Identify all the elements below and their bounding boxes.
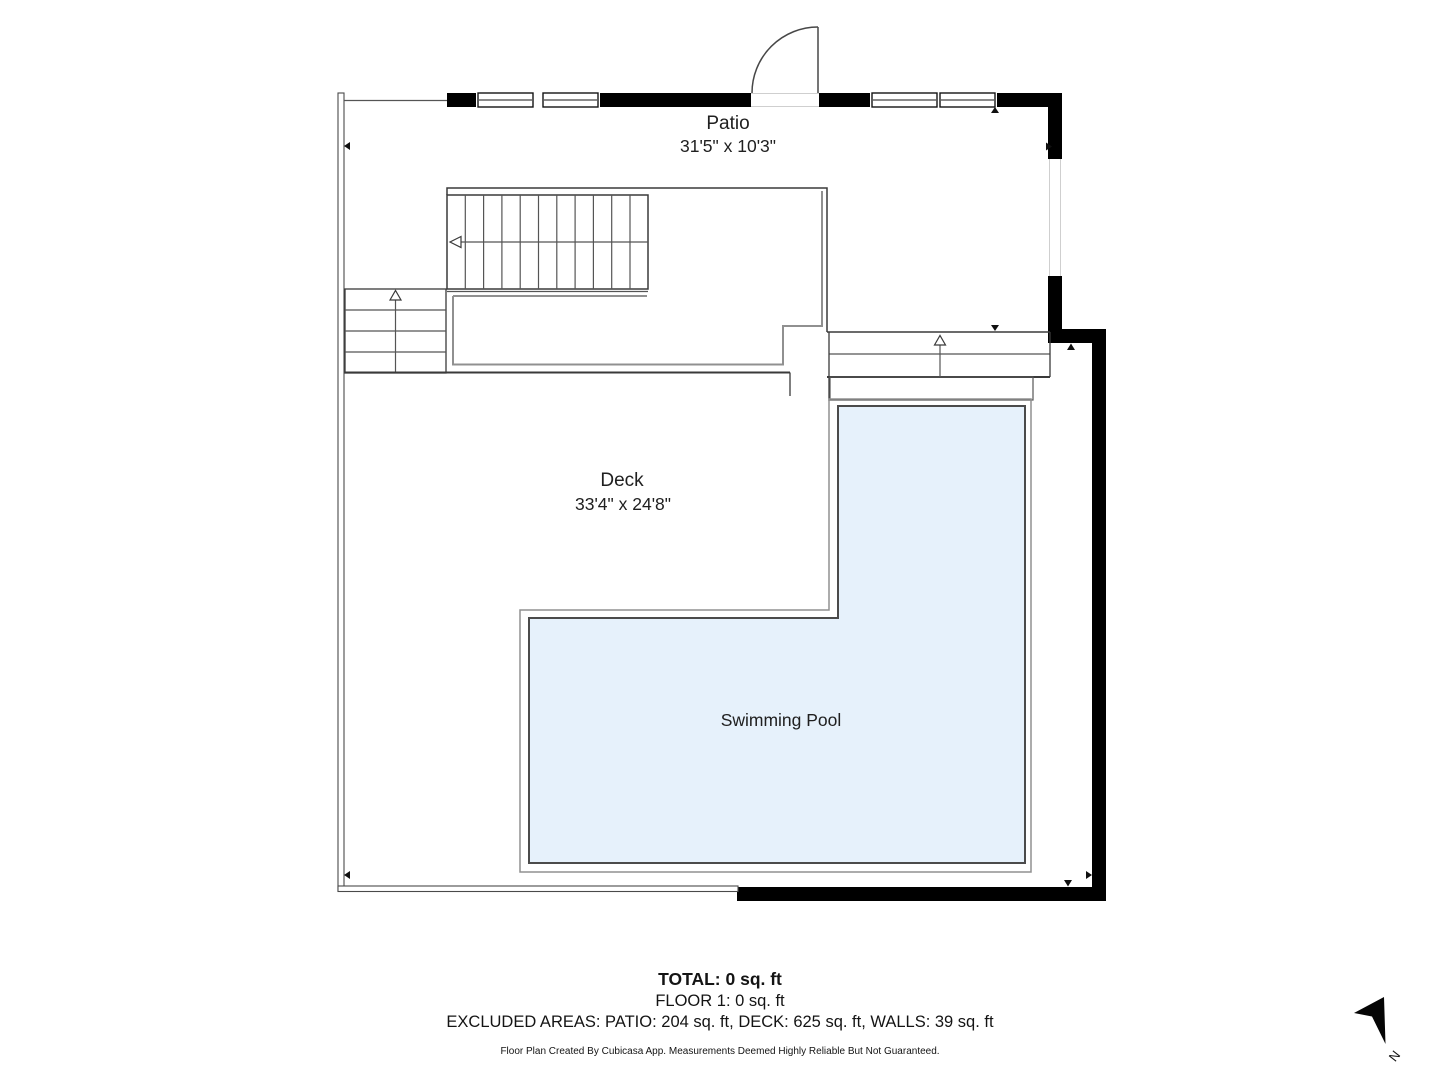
summary-block: TOTAL: 0 sq. ft FLOOR 1: 0 sq. ft EXCLUD… bbox=[446, 969, 994, 1057]
staircase-right bbox=[827, 332, 1050, 401]
summary-floor: FLOOR 1: 0 sq. ft bbox=[655, 992, 785, 1010]
window-1 bbox=[478, 93, 533, 107]
right-wall-opening bbox=[1050, 159, 1061, 276]
wall-right-mid bbox=[1048, 276, 1062, 329]
patio-door bbox=[751, 27, 819, 109]
swimming-pool-area bbox=[520, 399, 1031, 872]
marker-right-lower bbox=[1086, 871, 1092, 879]
marker-jog bbox=[1067, 344, 1075, 351]
window-4 bbox=[940, 93, 995, 107]
pool-label: Swimming Pool bbox=[721, 710, 842, 730]
staircase-main-treads bbox=[447, 195, 648, 292]
stair-direction-arrow-up-left bbox=[390, 291, 401, 301]
window-3 bbox=[872, 93, 937, 107]
summary-excluded: EXCLUDED AREAS: PATIO: 204 sq. ft, DECK:… bbox=[446, 1013, 994, 1031]
wall-bottom bbox=[737, 887, 1106, 901]
patio-label: Patio bbox=[706, 113, 749, 134]
walkway-outline bbox=[453, 191, 822, 365]
north-compass: N bbox=[1354, 997, 1403, 1064]
summary-disclaimer: Floor Plan Created By Cubicasa App. Meas… bbox=[500, 1046, 939, 1057]
pool-landing bbox=[830, 377, 1033, 400]
door-swing-arc bbox=[752, 27, 818, 93]
door-opening bbox=[751, 92, 819, 109]
deck-edges bbox=[345, 191, 822, 396]
staircase-main bbox=[447, 195, 648, 292]
marker-bottom-wall bbox=[1064, 880, 1072, 887]
patio-dimensions: 31'5" x 10'3" bbox=[680, 136, 776, 156]
patio-inner-boundary bbox=[447, 188, 827, 332]
marker-stairs-right bbox=[991, 325, 999, 331]
stair-direction-arrow-left bbox=[450, 237, 461, 248]
staircase-left-treads bbox=[345, 300, 446, 373]
floor-plan-page: Patio 31'5" x 10'3" Deck 33'4" x 24'8" S… bbox=[0, 0, 1440, 1080]
wall-bottom-thin bbox=[338, 886, 738, 892]
wall-right-upper bbox=[1048, 93, 1062, 159]
summary-total: TOTAL: 0 sq. ft bbox=[658, 969, 782, 989]
marker-left-upper bbox=[344, 142, 350, 150]
staircase-left bbox=[345, 289, 446, 373]
floor-plan-canvas: Patio 31'5" x 10'3" Deck 33'4" x 24'8" S… bbox=[0, 0, 1440, 1080]
deck-dimensions: 33'4" x 24'8" bbox=[575, 494, 671, 514]
north-arrow-icon bbox=[1354, 997, 1386, 1044]
deck-label: Deck bbox=[600, 470, 644, 491]
window-2 bbox=[543, 93, 598, 107]
north-label: N bbox=[1386, 1048, 1404, 1065]
stair-direction-arrow-up-right bbox=[935, 336, 946, 346]
marker-left-lower bbox=[344, 871, 350, 879]
wall-right-jog bbox=[1048, 329, 1106, 343]
wall-right-lower bbox=[1092, 343, 1106, 901]
wall-left-thin bbox=[338, 93, 344, 891]
